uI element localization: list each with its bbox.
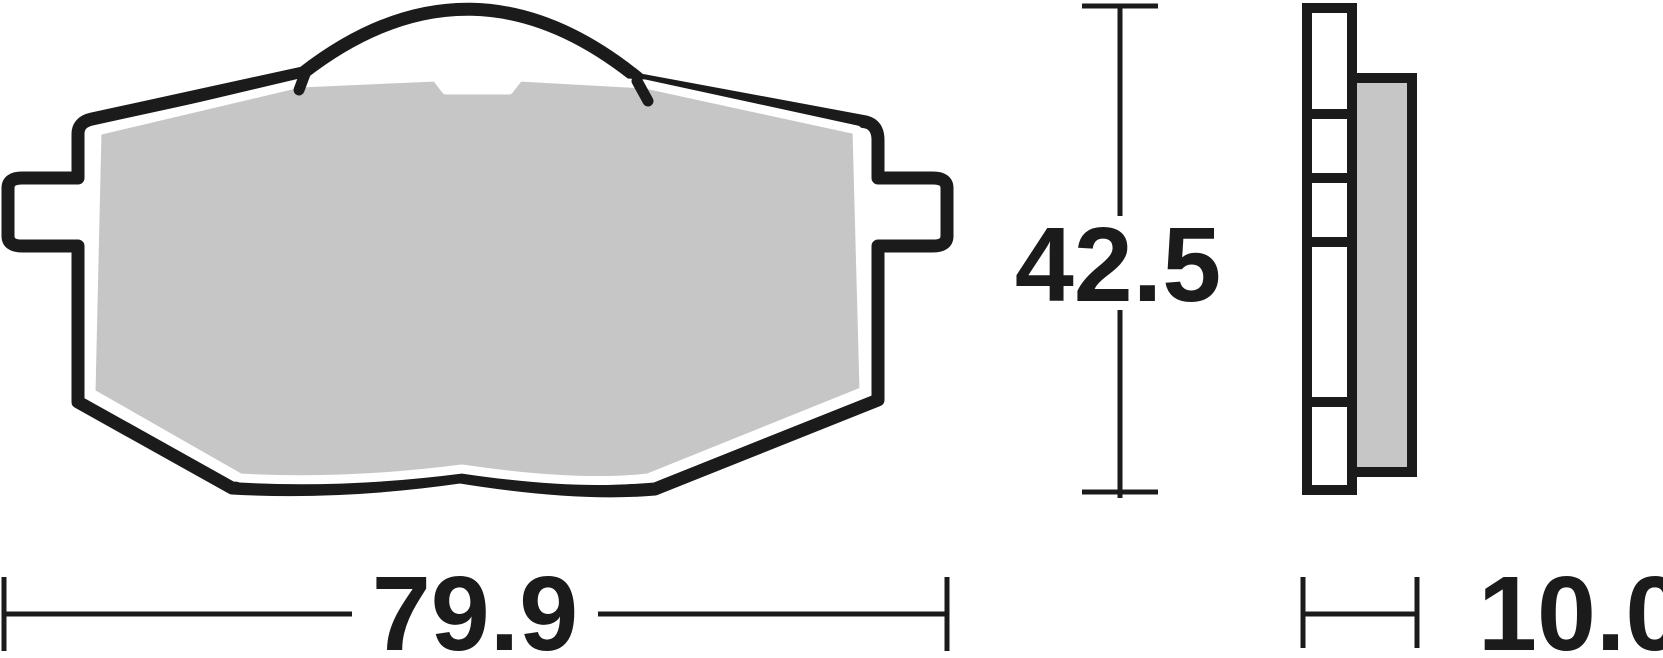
width-dimension: 79.9 bbox=[4, 555, 947, 658]
technical-drawing-canvas: 42.5 79.9 10.0 bbox=[0, 0, 1663, 658]
backing-plate-side bbox=[1307, 8, 1352, 490]
front-view bbox=[8, 9, 947, 491]
height-dimension: 42.5 bbox=[1015, 6, 1221, 498]
spring-clip-end-left bbox=[299, 74, 305, 90]
thickness-dimension: 10.0 bbox=[1303, 555, 1663, 658]
thickness-dimension-label: 10.0 bbox=[1478, 555, 1663, 658]
friction-material-side bbox=[1352, 78, 1412, 472]
height-dimension-label: 42.5 bbox=[1015, 206, 1221, 324]
width-dimension-label: 79.9 bbox=[372, 555, 578, 658]
friction-material-front bbox=[91, 77, 864, 481]
side-view bbox=[1302, 8, 1412, 490]
